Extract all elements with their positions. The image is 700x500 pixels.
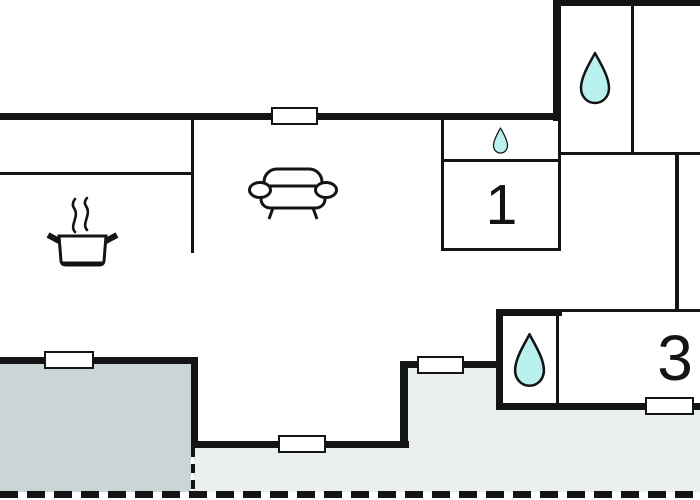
wall-segment	[556, 0, 700, 6]
wall-segment	[496, 309, 503, 410]
partition-wall	[556, 309, 700, 312]
window-marker	[271, 107, 318, 125]
terrace-boundary-dashed-bottom	[0, 491, 700, 498]
water-drop-icon	[578, 48, 612, 108]
terrace-area-left	[0, 364, 191, 492]
window-marker	[645, 397, 694, 415]
wall-segment	[0, 357, 198, 364]
sofa-icon	[247, 166, 339, 221]
wall-segment	[553, 0, 561, 121]
partition-wall	[631, 6, 634, 155]
window-marker	[417, 356, 464, 374]
steam-icon	[73, 198, 88, 232]
wall-segment	[496, 309, 562, 316]
window-marker	[44, 351, 94, 369]
partition-wall	[441, 248, 561, 251]
terrace-area-right	[193, 368, 700, 492]
partition-wall	[191, 120, 194, 253]
window-marker	[278, 435, 326, 453]
water-drop-icon	[512, 332, 547, 388]
partition-wall	[556, 312, 559, 403]
partition-wall	[0, 172, 194, 175]
room-1-label: 1	[444, 162, 559, 248]
room-3-label: 3	[640, 318, 700, 398]
floor-plan-canvas: 1 3	[0, 0, 700, 500]
partition-wall	[675, 155, 679, 310]
cooking-pot-icon	[45, 196, 120, 270]
wall-segment	[191, 357, 198, 448]
terrace-boundary-dashed-vertical	[191, 448, 195, 492]
wall-segment	[400, 361, 408, 448]
water-drop-icon	[492, 127, 509, 154]
